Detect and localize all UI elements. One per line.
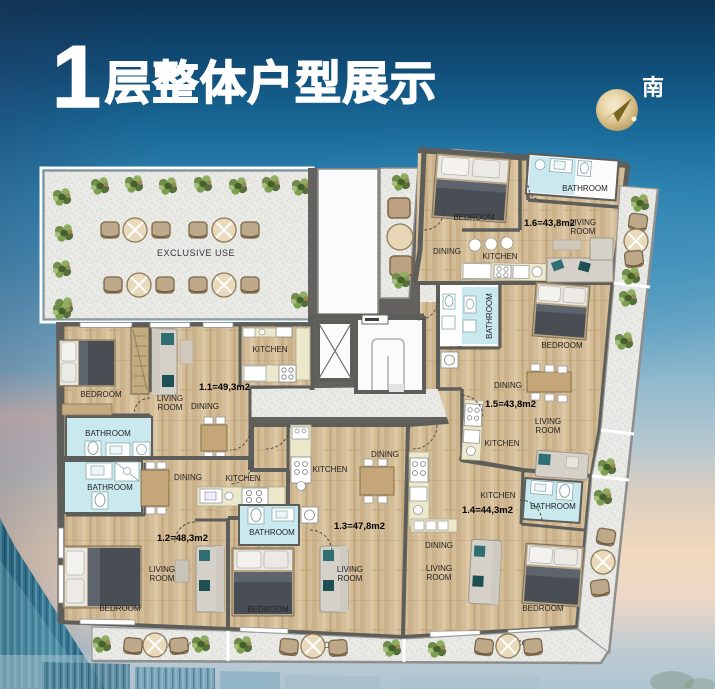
svg-text:DINING: DINING [174,473,202,482]
svg-text:KITCHEN: KITCHEN [482,252,517,261]
svg-text:LIVING: LIVING [426,564,452,573]
svg-text:DINING: DINING [191,402,219,411]
svg-text:BEDROOM: BEDROOM [453,213,495,222]
svg-text:BEDROOM: BEDROOM [99,604,141,613]
svg-text:ROOM: ROOM [571,227,596,236]
svg-text:BEDROOM: BEDROOM [541,341,583,350]
svg-text:BEDROOM: BEDROOM [247,605,289,614]
svg-text:KITCHEN: KITCHEN [252,345,287,354]
svg-text:KITCHEN: KITCHEN [480,491,515,500]
svg-text:LIVING: LIVING [157,394,183,403]
svg-text:KITCHEN: KITCHEN [225,474,260,483]
svg-text:南: 南 [642,75,664,100]
svg-text:BATHROOM: BATHROOM [485,293,494,339]
svg-text:LIVING: LIVING [535,417,561,426]
svg-text:1.5=43,8m2: 1.5=43,8m2 [485,399,536,410]
svg-text:BATHROOM: BATHROOM [249,528,295,537]
svg-text:1.3=47,8m2: 1.3=47,8m2 [334,521,385,532]
svg-text:KITCHEN: KITCHEN [484,439,519,448]
svg-text:1.4=44,3m2: 1.4=44,3m2 [462,505,513,516]
svg-text:BATHROOM: BATHROOM [530,502,576,511]
svg-text:LIVING: LIVING [570,218,596,227]
svg-text:EXCLUSIVE USE: EXCLUSIVE USE [157,248,235,258]
svg-text:BATHROOM: BATHROOM [85,429,131,438]
svg-text:BATHROOM: BATHROOM [87,483,133,492]
svg-text:BATHROOM: BATHROOM [562,184,608,193]
svg-text:ROOM: ROOM [427,573,452,582]
svg-text:LIVING: LIVING [337,565,363,574]
svg-text:ROOM: ROOM [158,403,183,412]
svg-text:ROOM: ROOM [150,574,175,583]
svg-text:BEDROOM: BEDROOM [80,390,122,399]
svg-text:DINING: DINING [494,381,522,390]
svg-text:1.6=43,8m2: 1.6=43,8m2 [524,218,575,229]
svg-text:KITCHEN: KITCHEN [312,465,347,474]
svg-text:1.2=48,3m2: 1.2=48,3m2 [157,533,208,544]
svg-text:DINING: DINING [425,541,453,550]
svg-text:DINING: DINING [433,247,461,256]
svg-text:ROOM: ROOM [536,426,561,435]
svg-text:1.1=49,3m2: 1.1=49,3m2 [199,382,250,393]
svg-text:LIVING: LIVING [149,565,175,574]
svg-text:BEDROOM: BEDROOM [522,604,564,613]
svg-text:ROOM: ROOM [338,574,363,583]
svg-text:DINING: DINING [371,450,399,459]
